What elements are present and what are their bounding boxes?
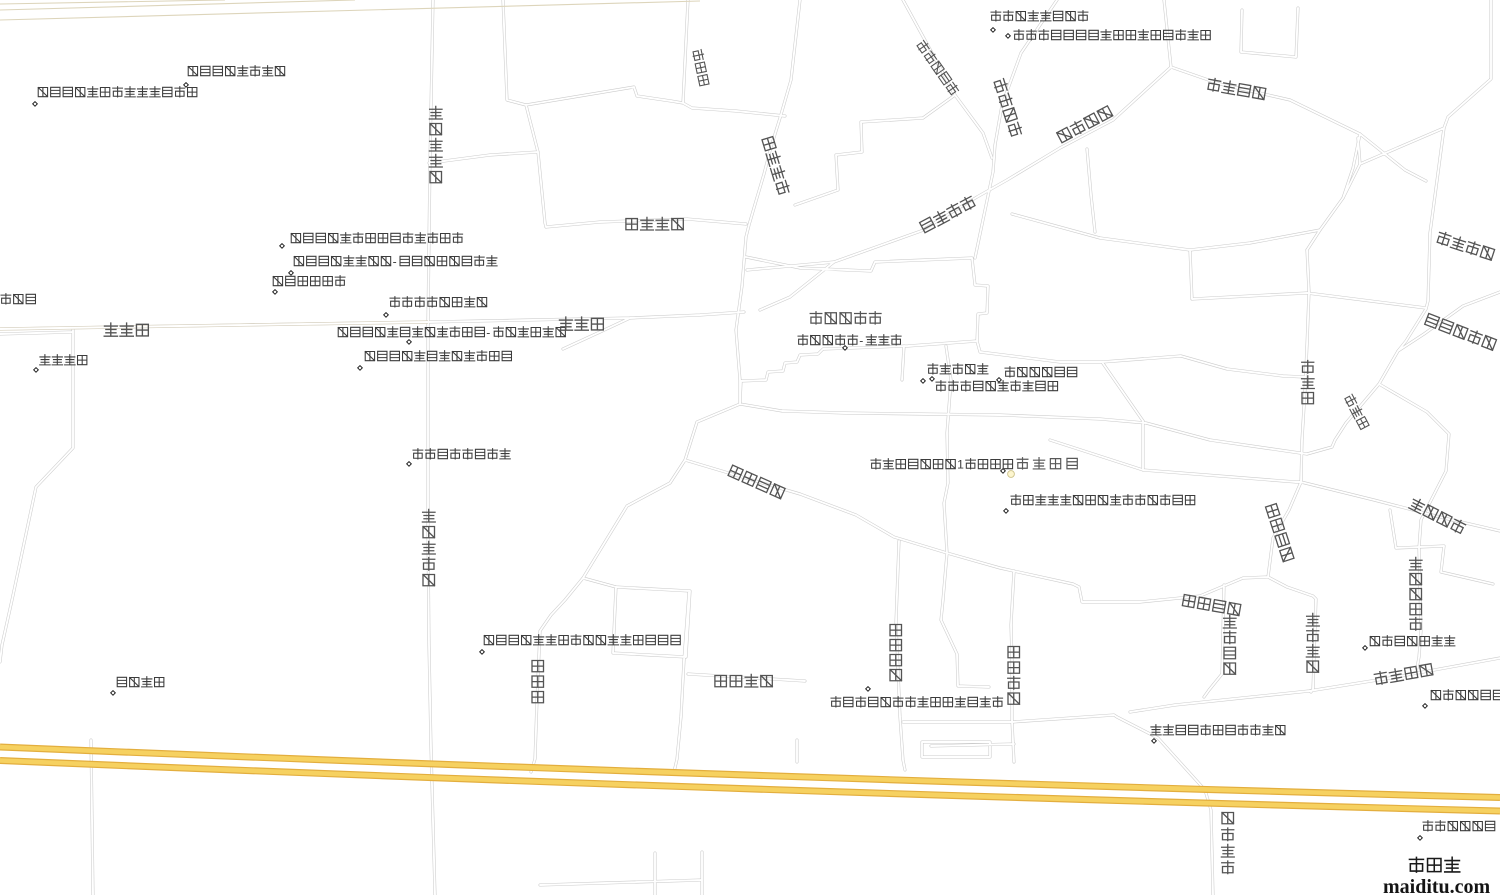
svg-text:-: - bbox=[486, 326, 490, 340]
svg-text:-: - bbox=[859, 334, 863, 348]
svg-text:1: 1 bbox=[957, 458, 964, 472]
svg-text:-: - bbox=[393, 255, 397, 269]
svg-text:maiditu.com: maiditu.com bbox=[1383, 876, 1491, 895]
